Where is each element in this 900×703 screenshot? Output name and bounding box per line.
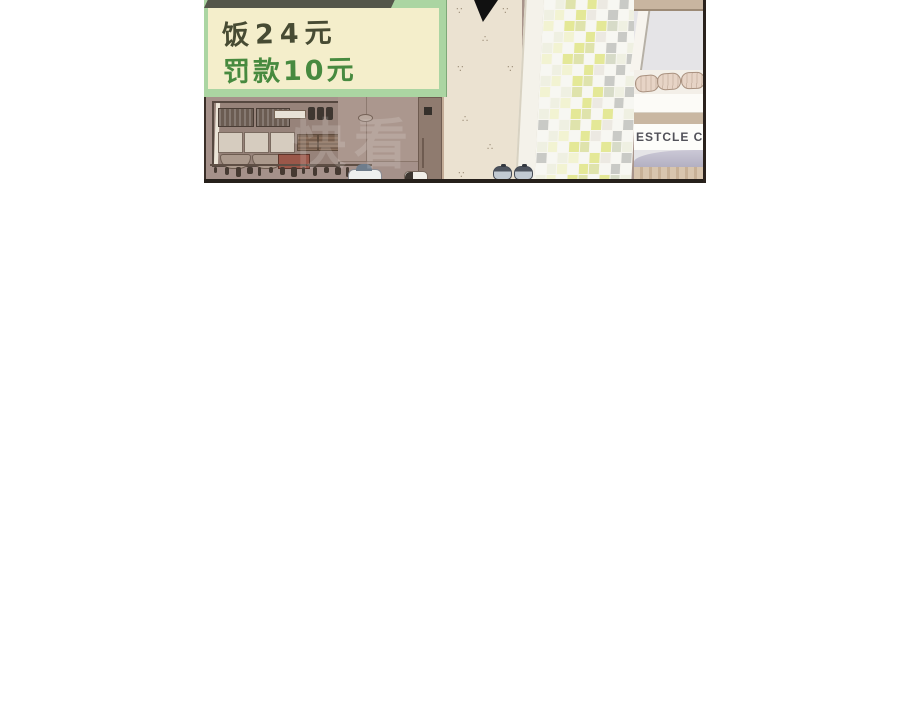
mosaic-tile [540,76,550,86]
mosaic-tile [558,142,568,152]
mosaic-tile [575,21,585,31]
mosaic-tile [618,21,628,31]
mosaic-tile [619,0,629,9]
mosaic-tile [624,109,634,119]
mosaic-tile [574,43,584,53]
mosaic-tile [610,164,620,174]
mosaic-tile [613,120,623,130]
mosaic-tile [607,32,617,42]
hanging-utensil [225,167,229,175]
towel-roll [657,72,682,90]
mosaic-tile [571,109,581,119]
mosaic-tile [580,142,590,152]
mosaic-tile [579,153,589,163]
mosaic-tile [548,131,558,141]
mosaic-tile [559,120,569,130]
mosaic-tile [614,98,624,108]
mosaic-tile [622,142,632,152]
mosaic-tile [565,21,575,31]
mosaic-tile [563,43,573,53]
mosaic-tile [603,98,613,108]
hanging-utensil [247,167,253,174]
mosaic-tile [613,109,623,119]
hanging-utensil [258,167,261,176]
mosaic-tile [585,43,595,53]
mosaic-tile [553,43,563,53]
mosaic-tile [562,76,572,86]
storage-bin [244,132,269,153]
mosaic-tile [617,32,627,42]
mosaic-tile [553,32,563,42]
mosaic-tile [551,76,561,86]
mosaic-tile [608,10,618,20]
hanging-utensil [269,167,273,173]
mosaic-tile [561,87,571,97]
wallpaper-motif: ∴ [458,168,464,179]
cabinet-display [424,107,432,115]
mosaic-tile [566,0,576,9]
mosaic-tile [568,153,578,163]
mosaic-tile [549,109,559,119]
mosaic-tile [572,76,582,86]
mosaic-tile [550,98,560,108]
mosaic-tile [557,164,567,174]
mosaic-tile [573,65,583,75]
mosaic-tile [544,0,554,9]
mosaic-tile [603,109,613,119]
mosaic-tile [595,43,605,53]
counter-sign-text: ESTCLE COU [634,130,706,144]
menu-line-price: 饭24元 [222,19,338,49]
mosaic-tile [611,153,621,163]
mosaic-tile [590,142,600,152]
mosaic-tile [554,21,564,31]
mosaic-tile [585,32,595,42]
mosaic-tile [547,153,557,163]
menu-board: 饭24元 罚款10元 [204,0,447,97]
mosaic-tile [583,76,593,86]
mosaic-tile [554,10,564,20]
mosaic-tile [560,98,570,108]
mosaic-tile [552,54,562,64]
counter-window [634,11,706,72]
mosaic-tile [593,87,603,97]
towel-roll [634,74,659,93]
mosaic-tile [564,32,574,42]
ceiling-beam [634,0,706,11]
wallpaper-motif: ∴ [457,62,463,73]
mosaic-tile [541,65,551,75]
mosaic-tile [584,54,594,64]
hanging-utensil [280,167,285,175]
menu-line-fine: 罚款10元 [223,57,357,86]
mosaic-tile [597,21,607,31]
mosaic-tile [604,87,614,97]
mosaic-tile [616,54,626,64]
storage-bin [218,132,243,153]
wallpaper-motif: ∴ [456,4,462,15]
mosaic-tile [591,131,601,141]
mosaic-tile [586,21,596,31]
mosaic-tile [537,131,547,141]
mosaic-tile [612,142,622,152]
mosaic-tile [573,54,583,64]
menu-board-top-bar [204,0,395,8]
mosaic-tile [548,142,558,152]
mosaic-tile [600,153,610,163]
mosaic-tile [589,164,599,174]
mosaic-tile [576,10,586,20]
mosaic-tile [575,32,585,42]
mosaic-tile [616,65,626,75]
mosaic-tile [623,120,633,130]
mosaic-tile [570,120,580,130]
mosaic-tile [572,87,582,97]
mosaic-tile [607,21,617,31]
mosaic-tile [563,54,573,64]
mosaic-tile [615,76,625,86]
mosaic-tile [576,0,586,9]
mosaic-tile [552,65,562,75]
mosaic-tile [614,87,624,97]
mosaic-tile [600,164,610,174]
mosaic-tile [536,153,546,163]
wallpaper-motif: ∴ [507,62,513,73]
hanging-utensil [214,167,217,173]
towel-shelf [634,70,706,96]
mosaic-tile [592,98,602,108]
mosaic-tile [536,164,546,174]
mosaic-tile [550,87,560,97]
mosaic-tile [591,120,601,130]
wallpaper-motif: ∴ [487,142,493,153]
mosaic-tile [594,65,604,75]
mosaic-tile [539,109,549,119]
mosaic-tile [587,0,597,9]
mosaic-tile [590,153,600,163]
speech-bubble-tail-icon [472,0,498,22]
hanging-utensil [236,167,241,177]
mosaic-tile [596,32,606,42]
mosaic-tile [617,43,627,53]
mosaic-tile [569,131,579,141]
wallpaper-motif: ∴ [462,114,468,125]
menu-board-face: 饭24元 罚款10元 [208,8,439,89]
mosaic-tile [558,153,568,163]
mosaic-tile [578,164,588,174]
food-counter: ESTCLE COU [634,0,706,183]
mosaic-tile [592,109,602,119]
mosaic-tile [598,0,608,9]
mosaic-tile [569,142,579,152]
tiled-pillar [534,0,641,183]
wallpaper-wall: ∴ ∴ ∴ ∴ ∴ ∴ ∴ ∴ [444,0,522,183]
mosaic-tile [581,120,591,130]
mosaic-tile [602,120,612,130]
teapot [514,166,533,180]
comic-panel: 饭24元 罚款10元 ∴ ∴ ∴ ∴ ∴ ∴ ∴ ∴ [204,0,706,183]
mosaic-tile [538,120,548,130]
mosaic-tile [623,131,633,141]
mosaic-tile [562,65,572,75]
mosaic-tile [621,164,631,174]
mosaic-tile [582,98,592,108]
mosaic-tile [543,32,553,42]
counter-lavender-band [634,150,706,167]
page-background: 饭24元 罚款10元 ∴ ∴ ∴ ∴ ∴ ∴ ∴ ∴ [0,0,900,703]
mosaic-tile [604,76,614,86]
towel-roll [681,72,706,90]
mosaic-tile [605,65,615,75]
wallpaper-motif: ∴ [482,34,488,45]
wire-basket [218,108,254,127]
mosaic-tile [608,0,618,9]
mosaic-tile [594,76,604,86]
panel-bottom-border [204,179,703,183]
mosaic-tile [580,131,590,141]
mosaic-tile [542,43,552,53]
mosaic-tile [555,0,565,9]
mosaic-tile [595,54,605,64]
mosaic-tile [560,109,570,119]
cabinet-handle [422,138,424,168]
counter-tan-band [634,113,706,124]
counter-sign: ESTCLE COU [634,124,706,150]
mosaic-tile [539,98,549,108]
mosaic-tile [601,131,611,141]
mosaic-tile [544,10,554,20]
mosaic-tile [622,153,632,163]
mosaic-tile [546,164,556,174]
teapot [493,166,512,180]
mosaic-tile [541,54,551,64]
mosaic-tile [597,10,607,20]
mosaic-tile [612,131,622,141]
watermark: 快看 [292,100,416,179]
mosaic-tile [586,10,596,20]
wallpaper-motif: ∴ [502,4,508,15]
mosaic-tile [537,142,547,152]
mosaic-tile [618,10,628,20]
mosaic-tile [601,142,611,152]
mosaic-tile [565,10,575,20]
counter-white-band [634,94,706,113]
mosaic-tile [571,98,581,108]
mosaic-tile [549,120,559,130]
mosaic-tile [584,65,594,75]
mosaic-tile [606,43,616,53]
mosaic-tile [581,109,591,119]
mosaic-tile [543,21,553,31]
mosaic-tile [559,131,569,141]
mosaic-tile [540,87,550,97]
mosaic-tile [582,87,592,97]
mosaic-tile [568,164,578,174]
mosaic-tile [605,54,615,64]
